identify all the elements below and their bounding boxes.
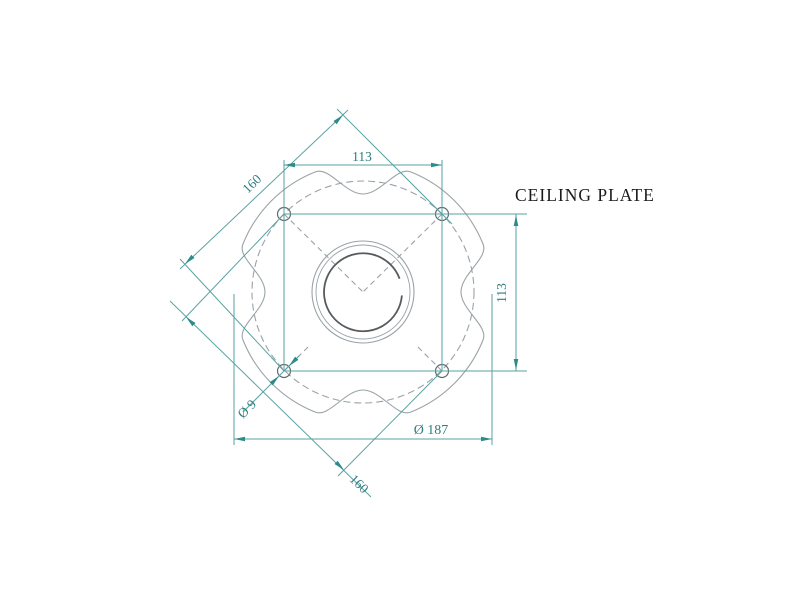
arrow-187-left xyxy=(234,437,245,442)
centerline-topleft-to-center xyxy=(284,214,363,292)
dim-text-dia187: Ø 187 xyxy=(414,423,449,438)
arrow-dia9-lower xyxy=(270,374,281,385)
dim-text-113-right: 113 xyxy=(494,283,509,303)
technical-drawing: 113 113 160 160 Ø 9 Ø 187 CEILING PLATE xyxy=(0,0,800,600)
center-opening-inner-rim xyxy=(316,245,410,339)
dim-text-160-lower: 160 xyxy=(347,471,372,496)
page-title: CEILING PLATE xyxy=(515,185,655,205)
arrow-113-top-right xyxy=(431,163,442,168)
hole-centerlines-dashed xyxy=(284,214,442,371)
centerline-bottomright-stub xyxy=(417,346,442,371)
dim-line-160-upper xyxy=(180,110,348,269)
center-opening-outer-rim xyxy=(312,241,414,343)
arrow-113-right-down xyxy=(514,359,519,370)
arrow-dia9-upper xyxy=(287,357,298,368)
center-opening-bore xyxy=(324,253,402,331)
ext-line-160-lower-a xyxy=(182,214,284,321)
arrow-113-top-left xyxy=(284,163,295,168)
centerline-topright-to-center xyxy=(363,214,442,292)
ext-line-160-upper-a xyxy=(180,259,284,371)
arrow-113-right-up xyxy=(514,215,519,226)
drawing-canvas: 113 113 160 160 Ø 9 Ø 187 CEILING PLATE xyxy=(0,0,800,600)
arrow-187-right xyxy=(481,437,492,442)
dim-text-113-top: 113 xyxy=(352,149,372,164)
